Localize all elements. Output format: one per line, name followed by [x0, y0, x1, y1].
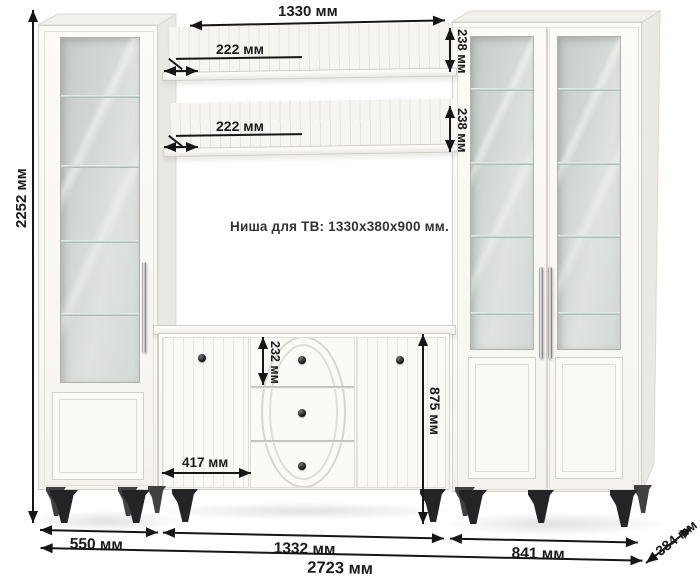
dim-left-width-arrow	[40, 529, 158, 533]
dim-total-width-label: 2723 мм	[307, 560, 373, 578]
dim-left-width-label: 550 мм	[70, 537, 123, 554]
dim-right-width-arrow	[450, 538, 638, 544]
bottom-dimensions-group: 550 мм 1332 мм 841 мм 2723 мм	[0, 0, 700, 578]
dim-stand-width-label: 1332 мм	[273, 541, 335, 558]
dim-stand-width-arrow	[163, 532, 444, 540]
dim-right-width-label: 841 мм	[511, 546, 564, 563]
furniture-dimension-diagram: Ниша для ТВ: 1330x380x900 мм. 2252 мм 13…	[0, 0, 700, 578]
